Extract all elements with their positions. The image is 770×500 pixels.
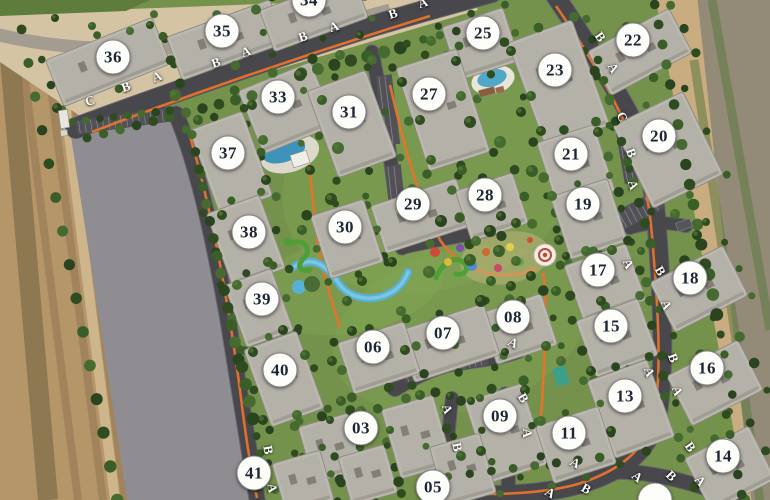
building-marker-27[interactable]: 27 [412, 77, 447, 112]
building-marker-05[interactable]: 05 [416, 470, 451, 500]
building-marker-17[interactable]: 17 [581, 253, 616, 288]
building-marker-31[interactable]: 31 [332, 95, 367, 130]
building-marker-28[interactable]: 28 [468, 178, 503, 213]
building-marker-14[interactable]: 14 [706, 439, 741, 474]
building-marker-33[interactable]: 33 [261, 80, 296, 115]
building-marker-06[interactable]: 06 [356, 330, 391, 365]
building-marker-35[interactable]: 35 [205, 14, 240, 49]
building-marker-19[interactable]: 19 [566, 187, 601, 222]
road-letter-A-29: A [519, 428, 535, 438]
building-marker-13[interactable]: 13 [608, 379, 643, 414]
building-marker-20[interactable]: 20 [642, 119, 677, 154]
building-marker-03[interactable]: 03 [344, 411, 379, 446]
building-marker-18[interactable]: 18 [673, 261, 708, 296]
building-marker-09[interactable]: 09 [483, 399, 518, 434]
building-marker-29[interactable]: 29 [396, 187, 431, 222]
building-marker-23[interactable]: 23 [538, 53, 573, 88]
building-marker-15[interactable]: 15 [594, 309, 629, 344]
building-marker-21[interactable]: 21 [554, 137, 589, 172]
building-marker-08[interactable]: 08 [496, 300, 531, 335]
building-marker-41[interactable]: 41 [237, 456, 272, 491]
building-marker-30[interactable]: 30 [328, 210, 363, 245]
site-plan-map: 3435362522232733312037212829193038171839… [0, 0, 770, 500]
building-marker-16[interactable]: 16 [690, 351, 725, 386]
building-marker-37[interactable]: 37 [211, 136, 246, 171]
building-marker-38[interactable]: 38 [232, 215, 267, 250]
building-marker-25[interactable]: 25 [466, 16, 501, 51]
building-marker-22[interactable]: 22 [616, 23, 651, 58]
building-marker-39[interactable]: 39 [245, 282, 280, 317]
building-marker-11[interactable]: 11 [552, 416, 587, 451]
site-base-art [0, 0, 770, 500]
building-marker-40[interactable]: 40 [263, 353, 298, 388]
building-marker-36[interactable]: 36 [96, 40, 131, 75]
building-marker-07[interactable]: 07 [426, 316, 461, 351]
